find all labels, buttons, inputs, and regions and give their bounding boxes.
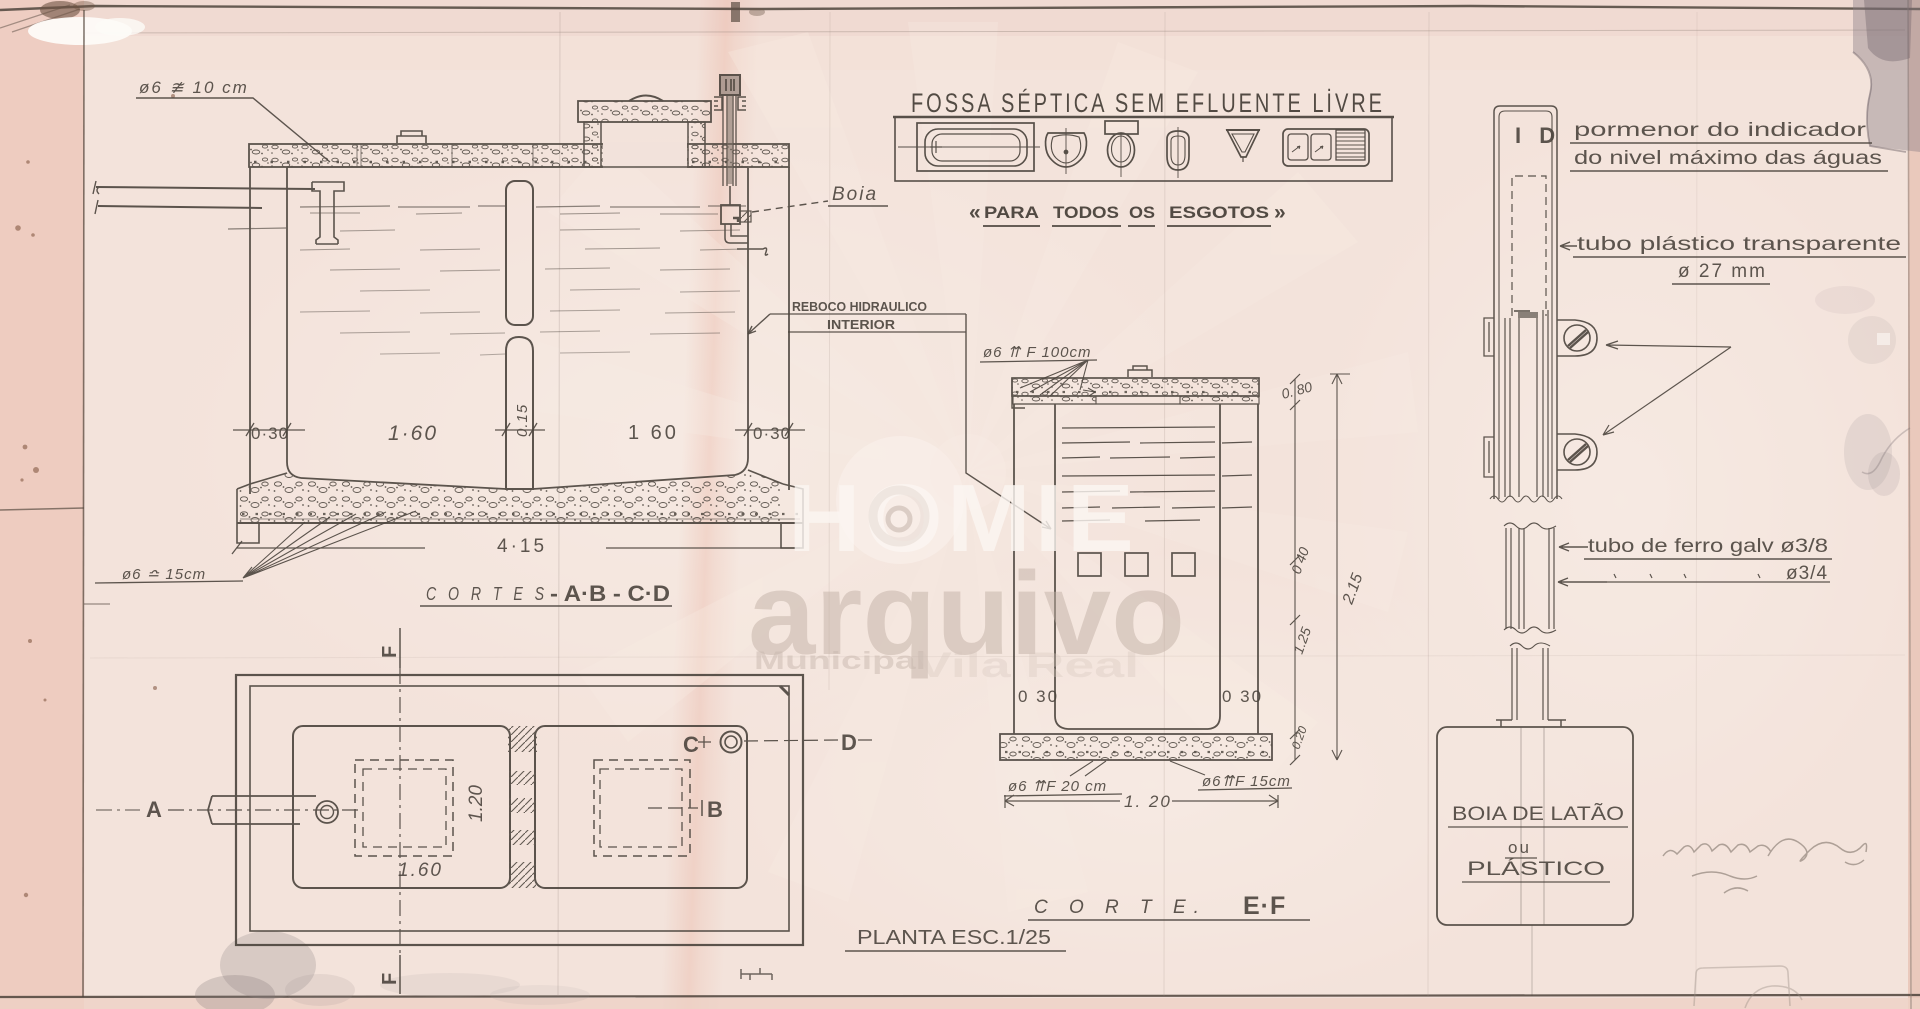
svg-text:B: B bbox=[707, 797, 723, 822]
svg-text:«: « bbox=[969, 201, 981, 224]
svg-text:1. 20: 1. 20 bbox=[1124, 792, 1172, 811]
svg-text:A: A bbox=[146, 797, 162, 822]
svg-text:ou: ou bbox=[1508, 838, 1531, 857]
svg-text:ø6 ≏ 15cm: ø6 ≏ 15cm bbox=[122, 566, 206, 583]
svg-text:ø6⇈F 15cm: ø6⇈F 15cm bbox=[1202, 773, 1291, 790]
svg-text:ø6 ⇈ F 100cm: ø6 ⇈ F 100cm bbox=[983, 344, 1092, 361]
svg-text:C O R T E.: C O R T E. bbox=[1034, 897, 1207, 918]
svg-text:PLÁSTICO: PLÁSTICO bbox=[1467, 859, 1605, 880]
svg-text:C: C bbox=[683, 732, 699, 757]
svg-text:Municipal: Municipal bbox=[754, 647, 926, 675]
svg-text:Vila Real: Vila Real bbox=[916, 646, 1139, 685]
svg-text:OS: OS bbox=[1129, 204, 1155, 222]
svg-text:F: F bbox=[379, 646, 401, 658]
svg-text:0 30: 0 30 bbox=[1018, 687, 1059, 706]
svg-text:»: » bbox=[1274, 201, 1286, 224]
svg-text:do nivel máximo das águas: do nivel máximo das águas bbox=[1574, 148, 1882, 169]
svg-text:1.20: 1.20 bbox=[466, 785, 487, 822]
svg-text:C O R T E S: C O R T E S bbox=[426, 584, 548, 604]
svg-text:I D: I D bbox=[1515, 123, 1561, 148]
svg-text:D: D bbox=[841, 730, 857, 755]
svg-text:Boia: Boia bbox=[832, 184, 878, 205]
svg-text:ø6 ≇ 10 cm: ø6 ≇ 10 cm bbox=[139, 78, 249, 97]
svg-text:F: F bbox=[379, 973, 401, 985]
svg-text:1·60: 1·60 bbox=[388, 422, 438, 445]
svg-text:ø3/4: ø3/4 bbox=[1786, 563, 1828, 584]
svg-text:PARA: PARA bbox=[984, 204, 1039, 222]
svg-text:INTERIOR: INTERIOR bbox=[827, 317, 896, 332]
svg-text:ø 27 mm: ø 27 mm bbox=[1678, 261, 1767, 282]
svg-text:0·30: 0·30 bbox=[251, 424, 289, 443]
svg-text:0 30: 0 30 bbox=[1222, 687, 1263, 706]
svg-text:tubo plástico transparente: tubo plástico transparente bbox=[1577, 234, 1901, 255]
svg-text:TODOS: TODOS bbox=[1053, 204, 1119, 222]
svg-text:E·F: E·F bbox=[1243, 892, 1286, 920]
svg-text:0·30: 0·30 bbox=[753, 424, 791, 443]
svg-text:1.60: 1.60 bbox=[398, 860, 443, 881]
svg-text:ø6 ⇈F 20 cm: ø6 ⇈F 20 cm bbox=[1008, 778, 1107, 795]
svg-text:4·15: 4·15 bbox=[497, 536, 547, 557]
svg-text:FOSSA SÉPTICA SEM EFLUENTE LİV: FOSSA SÉPTICA SEM EFLUENTE LİVRE bbox=[911, 87, 1385, 118]
svg-text:1 60: 1 60 bbox=[628, 422, 679, 444]
svg-text:0.15: 0.15 bbox=[514, 404, 531, 437]
svg-text:tubo de ferro galv ø3/8: tubo de ferro galv ø3/8 bbox=[1588, 536, 1828, 557]
svg-text:- A·B - C·D: - A·B - C·D bbox=[550, 581, 670, 606]
svg-text:BOIA DE LATÃO: BOIA DE LATÃO bbox=[1452, 803, 1624, 825]
svg-text:ESGOTOS: ESGOTOS bbox=[1169, 204, 1269, 222]
svg-text:REBOCO HIDRAULICO: REBOCO HIDRAULICO bbox=[792, 299, 927, 314]
svg-text:PLANTA ESC.1/25: PLANTA ESC.1/25 bbox=[857, 927, 1051, 949]
svg-text:pormenor do indicador: pormenor do indicador bbox=[1574, 120, 1867, 141]
